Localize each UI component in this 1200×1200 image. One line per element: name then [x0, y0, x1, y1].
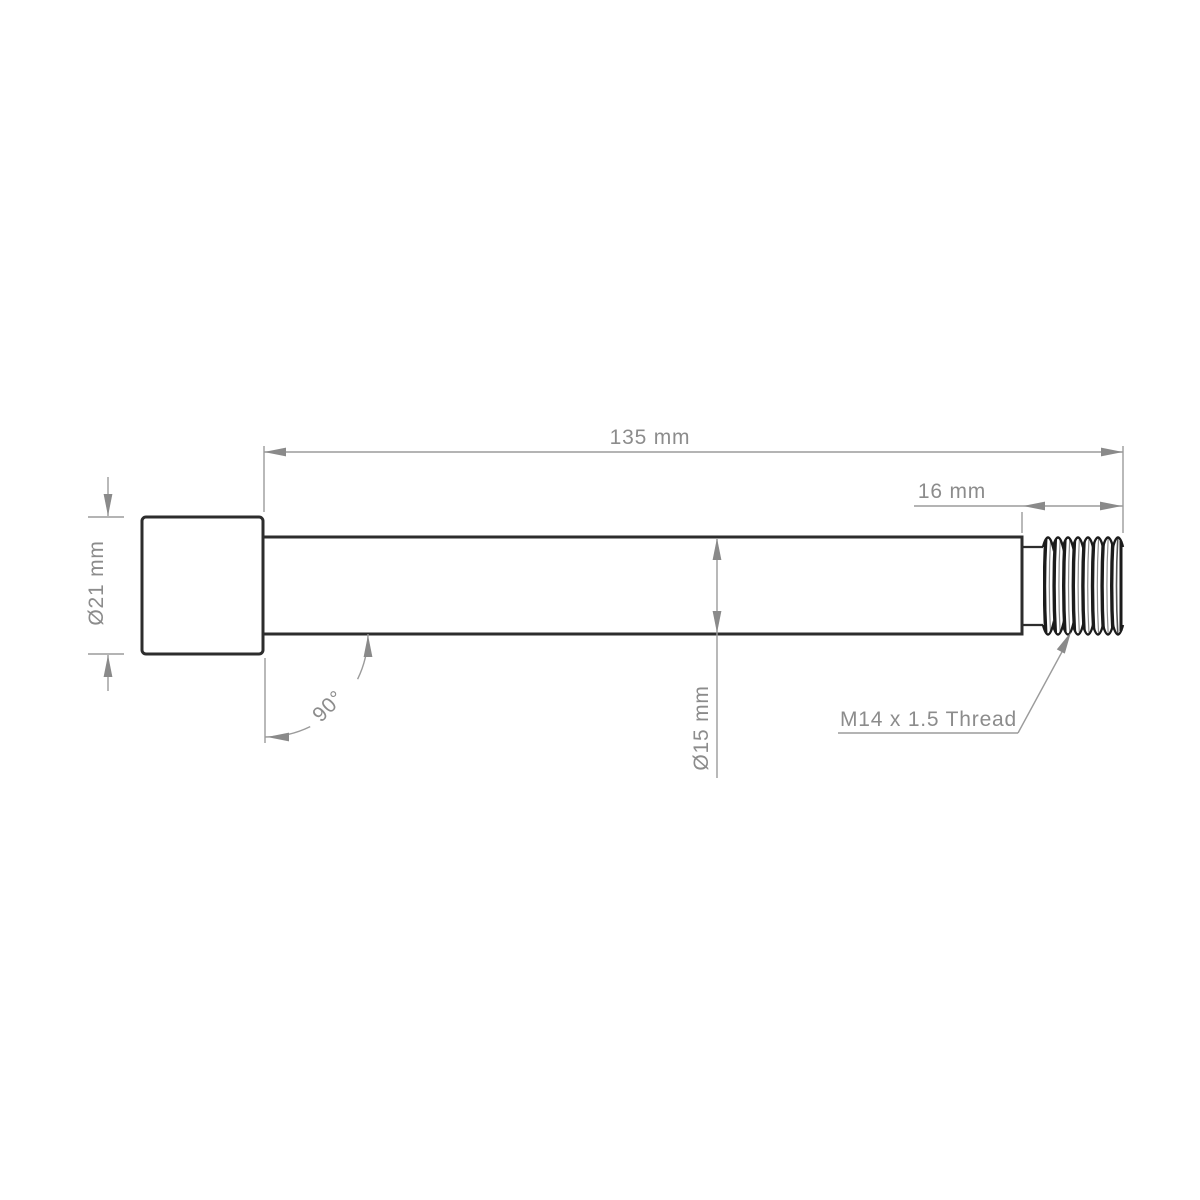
- overall-length-label: 135 mm: [610, 426, 691, 449]
- shaft-diameter-label: Ø15 mm: [690, 685, 713, 770]
- dim-overall-length: 135 mm: [264, 426, 1123, 533]
- dim-head-diameter: Ø21 mm: [85, 477, 124, 691]
- dim-angle: 90°: [265, 634, 372, 743]
- axle-thread: [1043, 534, 1123, 638]
- leader-line: [1018, 650, 1063, 733]
- arrow-right-icon: [1101, 448, 1123, 457]
- drawing-canvas: 135 mm 16 mm Ø21 mm Ø15 mm 90° M14 x 1.5: [0, 0, 1200, 1200]
- arrow-down-icon: [104, 494, 113, 516]
- arrow-right-icon: [1100, 502, 1122, 511]
- arrow-left-icon: [1023, 502, 1045, 511]
- thread-spec-label: M14 x 1.5 Thread: [840, 708, 1017, 731]
- arrow-left-icon: [264, 448, 286, 457]
- arrow-left-icon: [267, 733, 289, 742]
- axle-part: [142, 517, 1123, 654]
- thread-callout: M14 x 1.5 Thread: [838, 632, 1071, 733]
- axle-shaft: [264, 537, 1022, 634]
- axle-head: [142, 517, 263, 654]
- arrow-up-icon: [364, 635, 373, 657]
- shoulder-angle-label: 90°: [308, 686, 348, 726]
- head-diameter-label: Ø21 mm: [85, 540, 108, 625]
- technical-drawing: 135 mm 16 mm Ø21 mm Ø15 mm 90° M14 x 1.5: [0, 0, 1200, 1200]
- dim-thread-length: 16 mm: [914, 480, 1123, 533]
- arrow-up-icon: [104, 655, 113, 677]
- thread-length-label: 16 mm: [918, 480, 986, 503]
